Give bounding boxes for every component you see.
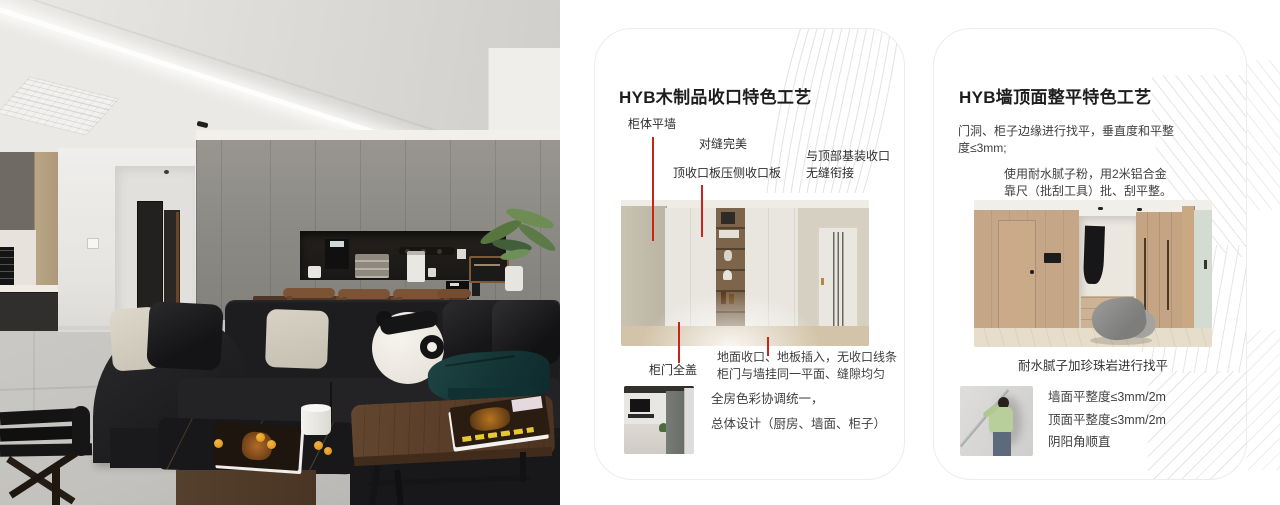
- kitchen-tall-cabinet: [34, 152, 61, 288]
- kitchen-lower-cabinet: [0, 292, 58, 331]
- thumb1-console: [628, 414, 654, 418]
- dining-chair-4: [437, 289, 471, 298]
- card-title: HYB墙顶面整平特色工艺: [959, 83, 1152, 108]
- decorative-lines-page-bottom: [1246, 330, 1280, 470]
- leader-line-top-board: [701, 185, 703, 237]
- orange-1: [214, 439, 223, 448]
- callout-seam-perfect: 对缝完美: [699, 136, 747, 153]
- niche-knob-3: [437, 249, 442, 254]
- cabinet-render-image: [621, 200, 869, 346]
- spec-line1: 墙面平整度≤3mm/2m: [1048, 389, 1166, 407]
- hall-glass-handle: [1204, 260, 1207, 269]
- hall-spot-1: [1098, 207, 1103, 210]
- hall-door: [998, 220, 1036, 332]
- spec-line3: 阴阳角顺直: [1048, 434, 1111, 452]
- hall-wardrobe-handle-2: [1167, 240, 1169, 310]
- para2-line1: 使用耐水腻子粉，用2米铝合金: [1004, 166, 1167, 184]
- render-shelf-item-vase: [724, 250, 732, 261]
- floor-joint-v: [33, 330, 35, 415]
- hall-thermostat: [1044, 253, 1061, 263]
- thumb1-gray-cabinet: [666, 391, 685, 454]
- callout-cabinet-flush-wall: 柜体平墙: [628, 116, 676, 133]
- niche-mug: [308, 266, 321, 278]
- pillow-black-left: [146, 301, 223, 371]
- orange-2: [256, 433, 265, 442]
- render-door-slats: [833, 232, 844, 328]
- summary-line1: 全房色彩协调统一，: [711, 391, 824, 409]
- render-shelf-item-bust: [723, 270, 732, 280]
- image-caption: 耐水腻子加珍珠岩进行找平: [974, 358, 1212, 376]
- para2-line2: 靠尺（批刮工具）批、刮平整。: [1004, 183, 1172, 201]
- right-upper-wall: [488, 48, 560, 143]
- sling-chair-rod: [72, 406, 90, 456]
- render-shelf-item-frame: [721, 212, 735, 224]
- mug-rim: [301, 404, 331, 412]
- para1-line2: 度≤3mm;: [958, 140, 1007, 158]
- kitchen-coffee-machine: [0, 247, 14, 285]
- hall-spot-2: [1137, 208, 1142, 211]
- card-wall-leveling: HYB墙顶面整平特色工艺 门洞、柜子边缘进行找平，垂直度和平整 度≤3mm; 使…: [933, 28, 1247, 480]
- callout-ceiling-joint-line2: 无缝衔接: [806, 165, 854, 182]
- callout-door-full-cover: 柜门全盖: [649, 362, 697, 379]
- note-line2: 柜门与墙挂同一平面、缝隙均匀: [717, 366, 885, 384]
- builtin-appliance-2: [472, 283, 480, 296]
- plant-pot: [505, 266, 523, 291]
- wood-table-leg-3: [520, 452, 526, 482]
- hall-glass-wall: [1194, 210, 1212, 334]
- note-line1: 地面收口、地板插入，无收口线条: [717, 349, 897, 367]
- page: HYB木制品收口特色工艺 柜体平墙 对缝完美 顶收口板压侧收口板 与顶部基装收口…: [0, 0, 1280, 505]
- panda-tail-ring: [420, 335, 444, 359]
- wood-hallway-image: [974, 200, 1212, 347]
- light-switch: [87, 238, 99, 249]
- info-panel: HYB木制品收口特色工艺 柜体平墙 对缝完美 顶收口板压侧收口板 与顶部基装收口…: [560, 0, 1280, 505]
- summary-line2: 总体设计（厨房、墙面、柜子）: [711, 416, 886, 434]
- render-shelf-item-boxes: [719, 230, 739, 238]
- hall-door-handle: [1030, 270, 1034, 274]
- render-floor-glow: [641, 292, 821, 346]
- thumb1-tv: [630, 399, 650, 412]
- marble-table-base: [176, 470, 316, 505]
- thumb2-worker-legs: [993, 432, 1011, 456]
- builtin-appliance-display: [450, 283, 459, 286]
- callout-ceiling-joint-line1: 与顶部基装收口: [806, 148, 890, 165]
- orange-3: [267, 440, 276, 449]
- hallway-door-wood-edge: [176, 212, 179, 312]
- callout-top-closing-board: 顶收口板压侧收口板: [673, 165, 781, 182]
- niche-white-coffee-maker: [407, 251, 425, 282]
- interior-thumb-image: [624, 386, 694, 454]
- niche-cup-rack: [355, 254, 389, 278]
- render-door-knob: [821, 278, 824, 285]
- para1-line1: 门洞、柜子边缘进行找平，垂直度和平整: [958, 123, 1174, 141]
- leader-line-door-cover: [678, 322, 680, 363]
- card-wood-finish: HYB木制品收口特色工艺 柜体平墙 对缝完美 顶收口板压侧收口板 与顶部基装收口…: [594, 28, 905, 480]
- thumb1-fridge: [684, 388, 694, 454]
- card-title: HYB木制品收口特色工艺: [619, 83, 812, 108]
- orange-4: [314, 441, 323, 450]
- niche-small-cup: [428, 268, 436, 277]
- hallway-door-1: [137, 201, 163, 317]
- orange-5: [324, 447, 332, 455]
- hallway-spot: [164, 170, 169, 174]
- decorative-lines-page-top: [1246, 60, 1280, 210]
- leader-line-cabinet-wall: [652, 137, 654, 241]
- niche-machine-display: [330, 241, 344, 247]
- living-room-photo: [0, 0, 560, 505]
- kitchen-upper-cabinet: [0, 152, 36, 233]
- niche-radio: [469, 256, 509, 283]
- niche-socket: [457, 249, 466, 259]
- hall-wardrobe-handle-1: [1144, 238, 1146, 310]
- niche-radio-speaker-line: [474, 264, 500, 266]
- worker-thumb-image: [960, 386, 1033, 456]
- pillow-cream-mid: [265, 309, 329, 369]
- sling-chair-leg-3: [52, 468, 60, 505]
- spec-line2: 顶面平整度≤3mm/2m: [1048, 412, 1166, 430]
